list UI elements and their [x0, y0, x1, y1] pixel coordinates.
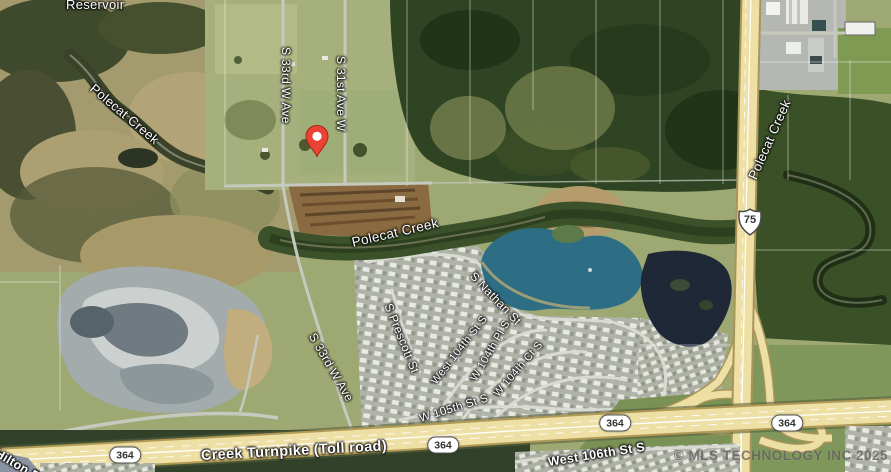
northeast-forest	[390, 0, 775, 192]
watermark: © MLS TECHNOLOGY INC 2025	[674, 448, 888, 463]
label-reservoir: Reservoir	[66, 0, 124, 11]
route-shield-364-mid: 364	[427, 437, 459, 454]
satellite-map[interactable]: Reservoir Polecat Creek S 33rd W Ave S 3…	[0, 0, 891, 472]
quarry	[57, 215, 273, 413]
route-shield-us-75: 75	[737, 208, 763, 236]
label-s-33rd-w-ave-north: S 33rd W Ave	[280, 47, 292, 124]
route-shield-364-east2: 364	[771, 415, 803, 432]
route-shield-364-west: 364	[109, 447, 141, 464]
route-shield-364-east1: 364	[599, 415, 631, 432]
rural-fields	[205, 0, 415, 190]
label-s-31st-ave-w: S 31st Ave W	[335, 56, 347, 131]
map-pin[interactable]	[304, 124, 330, 158]
route-shield-us-75-label: 75	[737, 214, 763, 226]
